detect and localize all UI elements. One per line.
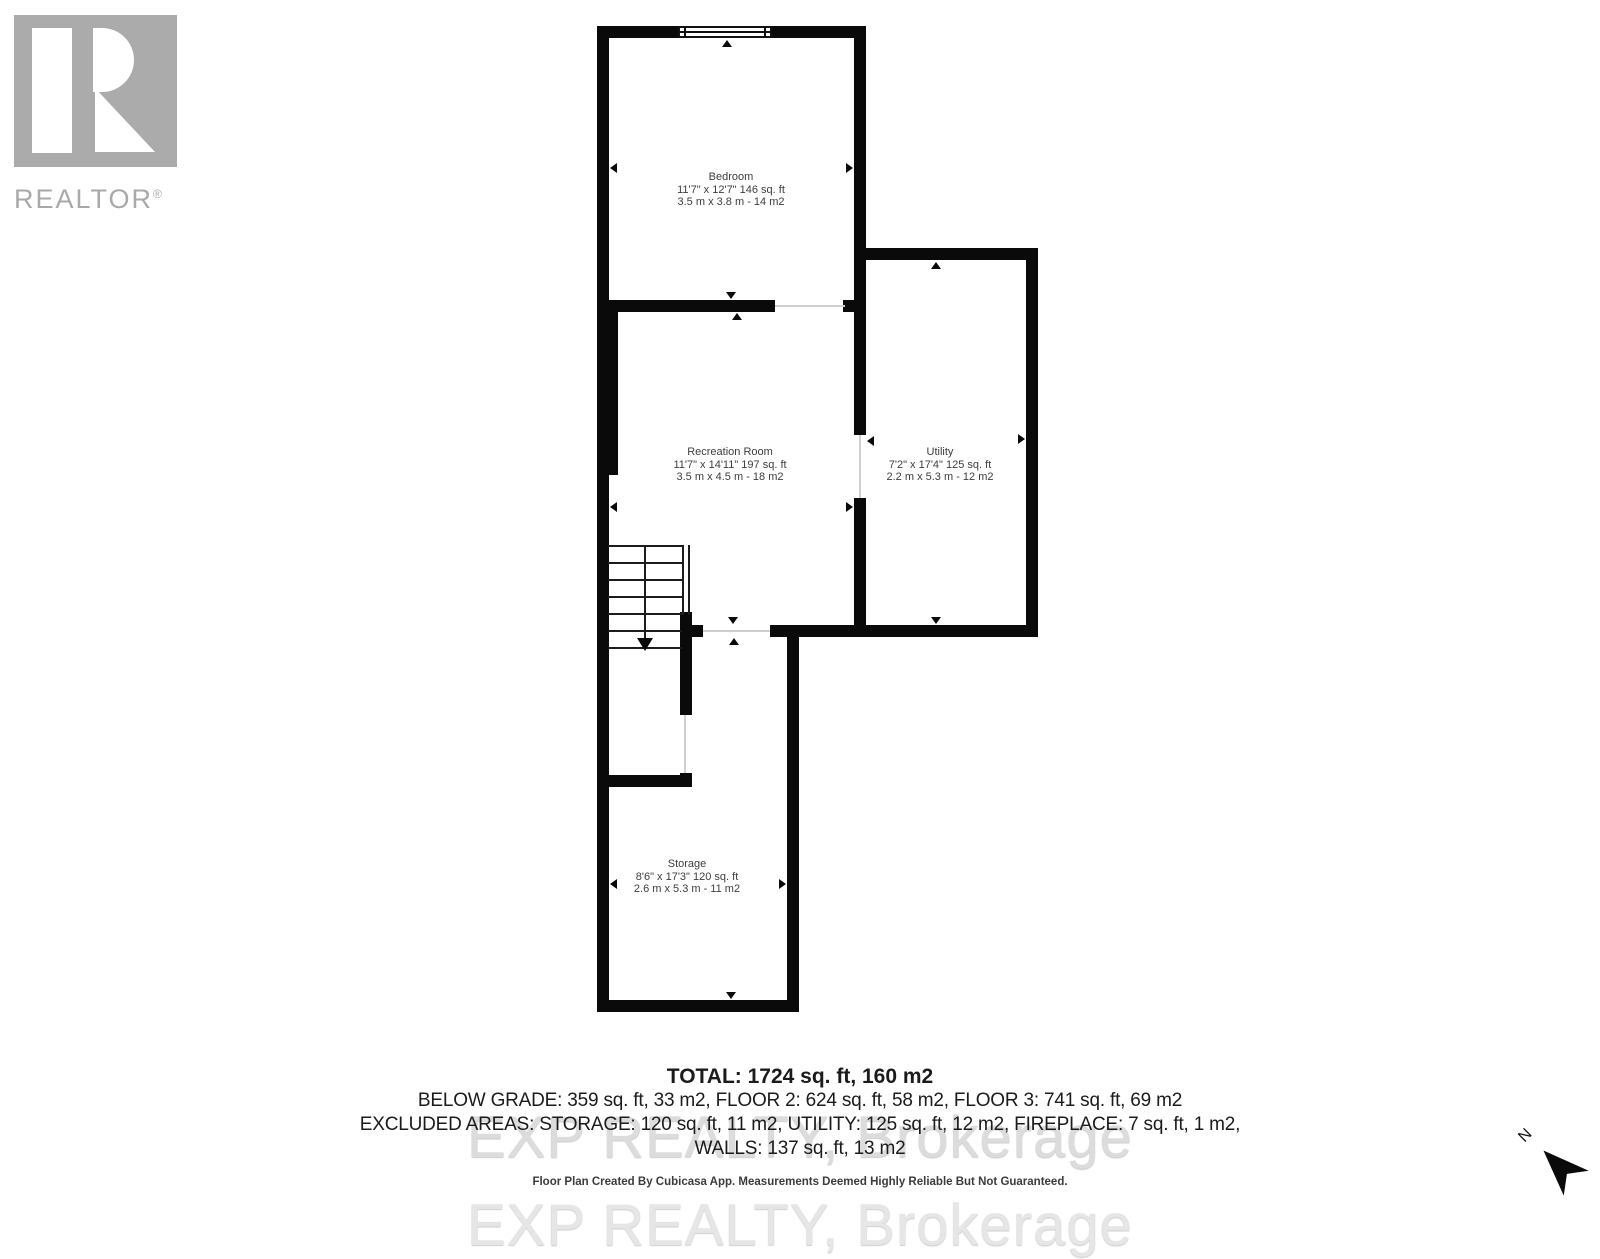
bedroom-window [678, 26, 772, 38]
measure-arrow-up-icon [722, 40, 732, 47]
wall-landing-bottom [609, 775, 688, 787]
wall-bedroom-right [854, 26, 866, 260]
summary-total: TOTAL: 1724 sq. ft, 160 m2 [0, 1064, 1600, 1089]
brokerage-watermark-partial: EXP REALTY, Brokerage [0, 1192, 1600, 1259]
room-name: Storage [567, 858, 807, 871]
room-label-recreation: Recreation Room 11'7" x 14'11" 197 sq. f… [610, 446, 850, 484]
measure-arrow-down-icon [726, 292, 736, 299]
room-dim-m: 2.2 m x 5.3 m - 12 m2 [820, 471, 1060, 484]
wall-utility-left-lower [854, 498, 866, 625]
summary-excluded: EXCLUDED AREAS: STORAGE: 120 sq. ft, 11 … [0, 1113, 1600, 1137]
room-label-bedroom: Bedroom 11'7" x 12'7" 146 sq. ft 3.5 m x… [611, 171, 851, 209]
measure-arrow-up-icon [732, 313, 742, 320]
room-label-utility: Utility 7'2" x 17'4" 125 sq. ft 2.2 m x … [820, 446, 1060, 484]
window-mullion-line [680, 31, 770, 33]
realtor-logo: REALTOR® [14, 15, 177, 215]
summary-walls: WALLS: 137 sq. ft, 13 m2 [0, 1137, 1600, 1161]
measure-arrow-up-icon [931, 262, 941, 269]
summary-floors: BELOW GRADE: 359 sq. ft, 33 m2, FLOOR 2:… [0, 1089, 1600, 1113]
measure-arrow-right-icon [1018, 434, 1025, 444]
wall-storage-bottom [597, 1000, 799, 1012]
measure-arrow-down-icon [931, 617, 941, 624]
room-name: Utility [820, 446, 1060, 459]
realtor-logo-text: REALTOR® [14, 184, 177, 215]
window-left-tick [684, 27, 686, 36]
stair-stringer-inner [682, 545, 684, 615]
floorplan-page: { "logo": { "brand": "REALTOR", "registe… [0, 0, 1600, 1209]
wall-utility-left-upper [854, 260, 866, 435]
door-threshold-rec [703, 630, 770, 632]
wall-rec-bottom-right [770, 625, 867, 637]
room-dim-ft: 11'7" x 12'7" 146 sq. ft [611, 184, 851, 197]
area-summary: TOTAL: 1724 sq. ft, 160 m2 BELOW GRADE: … [0, 1064, 1600, 1161]
stair-down-arrow-icon [637, 638, 653, 651]
measure-arrow-up-icon [729, 638, 739, 645]
door-threshold-landing [684, 715, 686, 773]
realtor-r-icon [14, 15, 177, 167]
room-name: Recreation Room [610, 446, 850, 459]
disclaimer-text: Floor Plan Created By Cubicasa App. Meas… [0, 1176, 1600, 1188]
measure-arrow-right-icon [846, 502, 853, 512]
room-dim-m: 3.5 m x 3.8 m - 14 m2 [611, 196, 851, 209]
room-dim-ft: 8'6" x 17'3" 120 sq. ft [567, 871, 807, 884]
room-dim-ft: 11'7" x 14'11" 197 sq. ft [610, 459, 850, 472]
window-right-tick [764, 27, 766, 36]
measure-arrow-left-icon [867, 436, 874, 446]
wall-utility-top [854, 248, 1038, 260]
wall-utility-right [1026, 248, 1038, 637]
room-dim-m: 2.6 m x 5.3 m - 11 m2 [567, 883, 807, 896]
room-label-storage: Storage 8'6" x 17'3" 120 sq. ft 2.6 m x … [567, 858, 807, 896]
measure-arrow-down-icon [728, 617, 738, 624]
room-dim-ft: 7'2" x 17'4" 125 sq. ft [820, 459, 1060, 472]
measure-arrow-left-icon [610, 502, 617, 512]
wall-stair-right-upper [680, 612, 692, 715]
measure-arrow-down-icon [726, 992, 736, 999]
stair-stringer-outer [688, 545, 690, 615]
room-dim-m: 3.5 m x 4.5 m - 18 m2 [610, 471, 850, 484]
wall-bedroom-bottom [597, 300, 775, 312]
door-threshold-bedroom [775, 305, 845, 307]
room-name: Bedroom [611, 171, 851, 184]
wall-storage-right [787, 625, 799, 1012]
stair-direction-line [644, 545, 646, 640]
wall-utility-bottom [846, 625, 1038, 637]
wall-rec-bottom-left [692, 625, 703, 637]
